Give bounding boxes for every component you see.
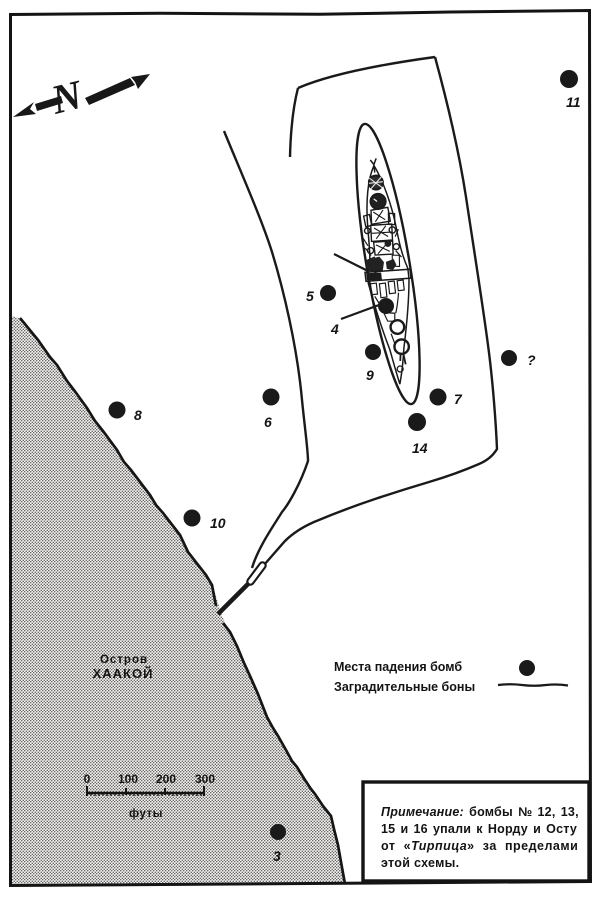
- svg-text:от «Тирпица» за пределами: от «Тирпица» за пределами: [381, 839, 578, 853]
- svg-text:Примечание: бомбы № 12, 13,: Примечание: бомбы № 12, 13,: [381, 805, 579, 819]
- svg-text:100: 100: [118, 772, 138, 786]
- svg-text:этой схемы.: этой схемы.: [381, 856, 459, 870]
- svg-text:ХААКОЙ: ХААКОЙ: [93, 666, 154, 681]
- svg-text:3: 3: [273, 848, 281, 864]
- svg-text:14: 14: [412, 440, 428, 456]
- svg-text:4: 4: [330, 321, 339, 337]
- svg-text:Остров: Остров: [100, 654, 148, 666]
- svg-text:Места падения бомб: Места падения бомб: [334, 660, 462, 674]
- svg-text:9: 9: [366, 367, 374, 383]
- svg-text:8: 8: [134, 407, 142, 423]
- svg-text:?: ?: [527, 352, 536, 368]
- svg-text:11: 11: [566, 94, 581, 110]
- svg-text:300: 300: [195, 772, 215, 786]
- svg-text:15 и 16 упали к Норду и Осту: 15 и 16 упали к Норду и Осту: [381, 822, 577, 836]
- svg-text:Заградительные боны: Заградительные боны: [334, 680, 475, 694]
- svg-text:0: 0: [84, 772, 91, 786]
- svg-text:6: 6: [264, 414, 272, 430]
- svg-text:10: 10: [210, 515, 226, 531]
- svg-text:7: 7: [454, 391, 463, 407]
- svg-text:5: 5: [306, 288, 314, 304]
- svg-text:200: 200: [156, 772, 176, 786]
- svg-text:футы: футы: [129, 808, 163, 820]
